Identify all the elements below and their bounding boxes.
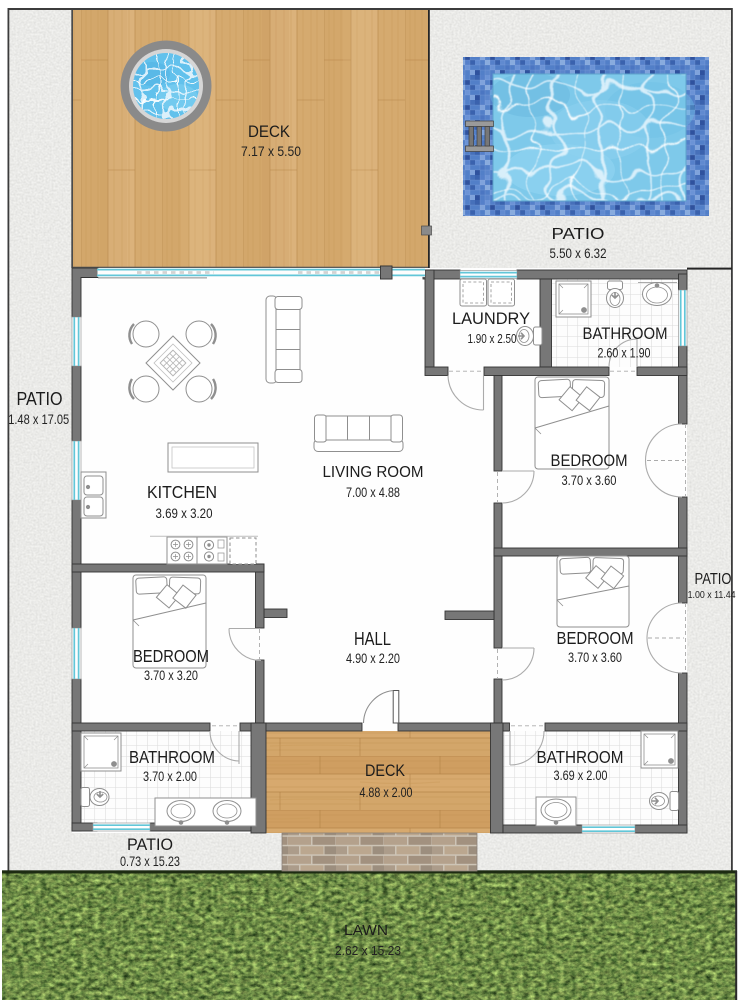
svg-text:BATHROOM: BATHROOM xyxy=(537,747,624,767)
svg-text:2.62 x 15.23: 2.62 x 15.23 xyxy=(335,943,401,958)
svg-text:0.73 x 15.23: 0.73 x 15.23 xyxy=(120,854,180,869)
svg-text:3.70 x 3.60: 3.70 x 3.60 xyxy=(568,650,622,665)
svg-text:DECK: DECK xyxy=(248,123,290,141)
svg-text:7.00 x 4.88: 7.00 x 4.88 xyxy=(346,485,400,500)
svg-text:1.90 x 2.50: 1.90 x 2.50 xyxy=(468,331,517,346)
svg-text:LAUNDRY: LAUNDRY xyxy=(452,309,530,328)
svg-text:4.90 x 2.20: 4.90 x 2.20 xyxy=(346,651,400,666)
svg-text:BEDROOM: BEDROOM xyxy=(551,451,628,470)
svg-text:7.17 x 5.50: 7.17 x 5.50 xyxy=(241,144,301,159)
svg-text:LAWN: LAWN xyxy=(344,922,388,939)
svg-text:DECK: DECK xyxy=(365,761,406,780)
svg-text:PATIO: PATIO xyxy=(17,389,63,409)
svg-text:3.70 x 3.60: 3.70 x 3.60 xyxy=(562,473,617,488)
svg-text:BATHROOM: BATHROOM xyxy=(583,325,668,343)
svg-text:BEDROOM: BEDROOM xyxy=(133,646,209,666)
svg-text:HALL: HALL xyxy=(354,629,391,649)
svg-text:4.88 x 2.00: 4.88 x 2.00 xyxy=(360,785,413,800)
svg-text:3.70 x 3.20: 3.70 x 3.20 xyxy=(144,668,198,683)
svg-text:3.70 x 2.00: 3.70 x 2.00 xyxy=(143,769,197,784)
svg-text:PATIO: PATIO xyxy=(127,835,173,854)
svg-text:3.69 x 3.20: 3.69 x 3.20 xyxy=(156,506,213,521)
svg-text:3.69 x 2.00: 3.69 x 2.00 xyxy=(554,768,608,783)
svg-text:5.50 x 6.32: 5.50 x 6.32 xyxy=(550,246,607,261)
svg-text:PATIO: PATIO xyxy=(552,226,605,243)
svg-text:2.60 x 1.90: 2.60 x 1.90 xyxy=(598,346,651,361)
svg-text:PATIO: PATIO xyxy=(695,571,732,588)
svg-text:LIVING ROOM: LIVING ROOM xyxy=(323,464,424,481)
svg-text:1.48 x 17.05: 1.48 x 17.05 xyxy=(8,412,69,427)
svg-text:BEDROOM: BEDROOM xyxy=(557,628,634,648)
svg-text:1.00 x 11.44: 1.00 x 11.44 xyxy=(688,589,736,601)
svg-text:KITCHEN: KITCHEN xyxy=(147,482,217,502)
svg-text:BATHROOM: BATHROOM xyxy=(129,747,215,767)
